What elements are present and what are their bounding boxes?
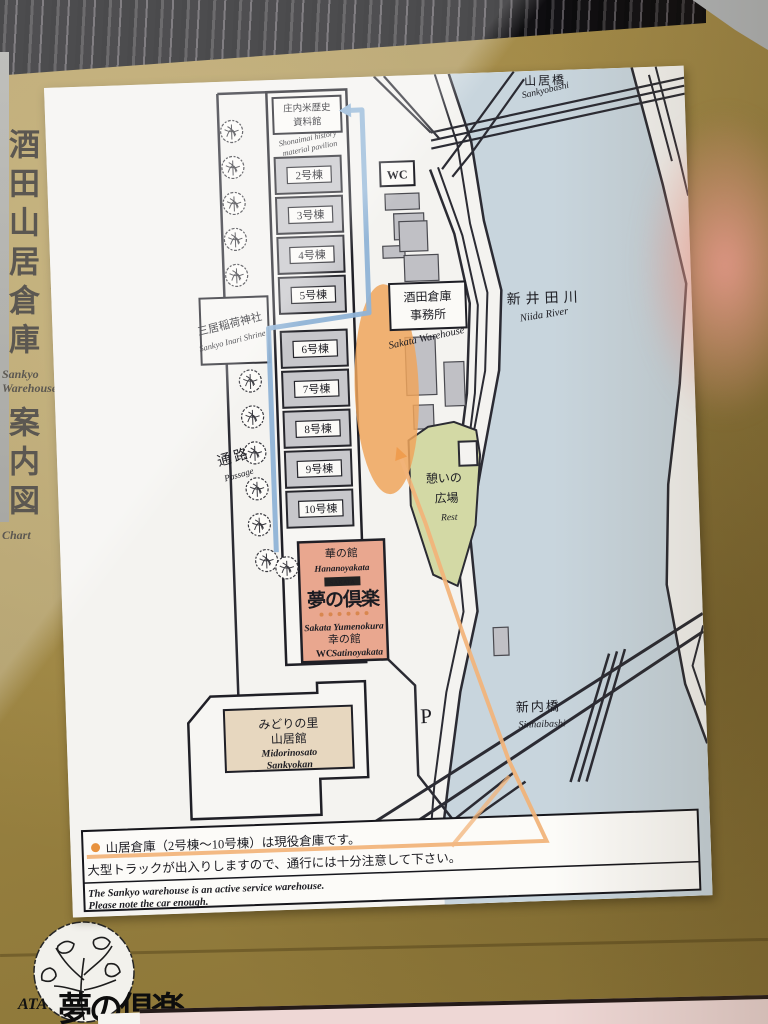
logo-top-label: SAKATA xyxy=(330,579,356,587)
side-title-japanese: 酒田山居倉庫 xyxy=(6,128,37,362)
svg-text:6号棟: 6号棟 xyxy=(301,341,329,356)
history-pavilion-jp2: 資料館 xyxy=(293,115,322,128)
wc-north-label: WC xyxy=(387,167,408,182)
side-title-en-line1: Sankyo xyxy=(2,367,39,381)
svg-text:7号棟: 7号棟 xyxy=(303,381,331,396)
midori-label-en1: Midorinosato xyxy=(260,747,317,760)
wc-south-label: WC xyxy=(316,648,334,660)
yumenokura-logo: 夢の倶楽 xyxy=(307,587,382,613)
side-subtitle-english: Chart xyxy=(2,529,64,543)
midori-label-jp2: 山居館 xyxy=(271,730,308,746)
sinnaibashi-label-jp: 新内橋 xyxy=(516,698,562,715)
sati-label-jp: 幸の館 xyxy=(328,631,361,646)
svg-text:9号棟: 9号棟 xyxy=(305,461,333,476)
midori-label-jp1: みどりの里 xyxy=(258,716,318,732)
side-title-en-line2: Warehouse xyxy=(2,381,57,395)
stamp-partial-text: ATA xyxy=(18,996,47,1014)
svg-text:8号棟: 8号棟 xyxy=(304,421,332,436)
map-panel: 山居橋 Sankyobashi 新井田川 Niida River 庄内米歴史 資… xyxy=(44,66,713,918)
svg-text:2号棟: 2号棟 xyxy=(295,167,323,182)
guide-map: 山居橋 Sankyobashi 新井田川 Niida River 庄内米歴史 資… xyxy=(44,66,713,918)
sinnaibashi-label-en: Sinnaibashi xyxy=(518,718,566,731)
side-subtitle-japanese: 案内図 xyxy=(6,406,37,523)
parking-label: P xyxy=(420,704,433,728)
svg-text:10号棟: 10号棟 xyxy=(304,501,337,516)
svg-text:3号棟: 3号棟 xyxy=(297,207,325,222)
midori-label-en2: Sankyokan xyxy=(267,759,314,772)
office-label-jp1: 酒田倉庫 xyxy=(403,288,452,305)
rest-label-en: Rest xyxy=(440,513,458,524)
rest-label-jp1: 憩いの xyxy=(426,470,463,486)
svg-text:5号棟: 5号棟 xyxy=(299,287,327,302)
rest-plaza-notch xyxy=(459,441,478,466)
hana-label-jp: 華の館 xyxy=(325,545,358,560)
rest-label-jp2: 広場 xyxy=(434,491,458,506)
svg-text:4号棟: 4号棟 xyxy=(298,247,326,262)
niida-river-label-jp: 新井田川 xyxy=(506,289,583,308)
office-label-jp2: 事務所 xyxy=(410,307,446,322)
sati-label-en: Satinoyakata xyxy=(332,648,384,660)
photo-of-guide-map-sign: 酒田山居倉庫 さんきょ Sankyo Warehouse 案内図 Chart xyxy=(0,0,768,1024)
hana-label-en: Hananoyakata xyxy=(313,562,370,574)
